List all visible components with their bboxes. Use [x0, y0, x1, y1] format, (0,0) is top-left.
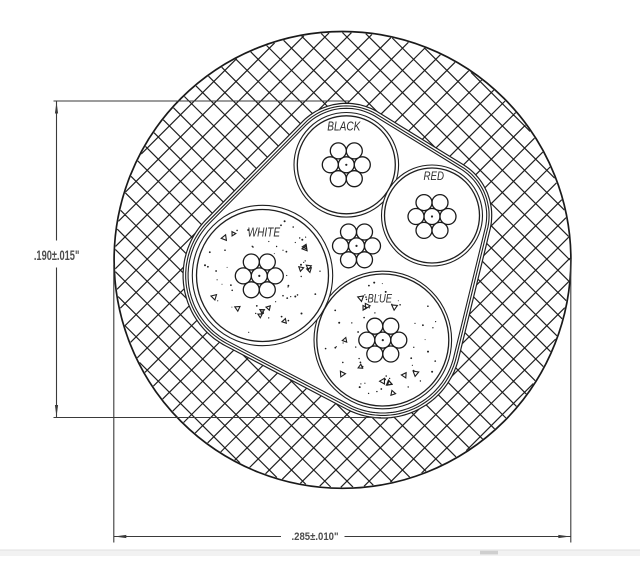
- svg-text:.285±.010": .285±.010": [292, 531, 339, 543]
- svg-text:BLACK: BLACK: [327, 119, 361, 134]
- svg-text:RED: RED: [424, 171, 445, 183]
- svg-text:BLUE: BLUE: [368, 291, 393, 305]
- svg-text:WHITE: WHITE: [248, 224, 281, 239]
- svg-text:.190±.015": .190±.015": [34, 248, 80, 263]
